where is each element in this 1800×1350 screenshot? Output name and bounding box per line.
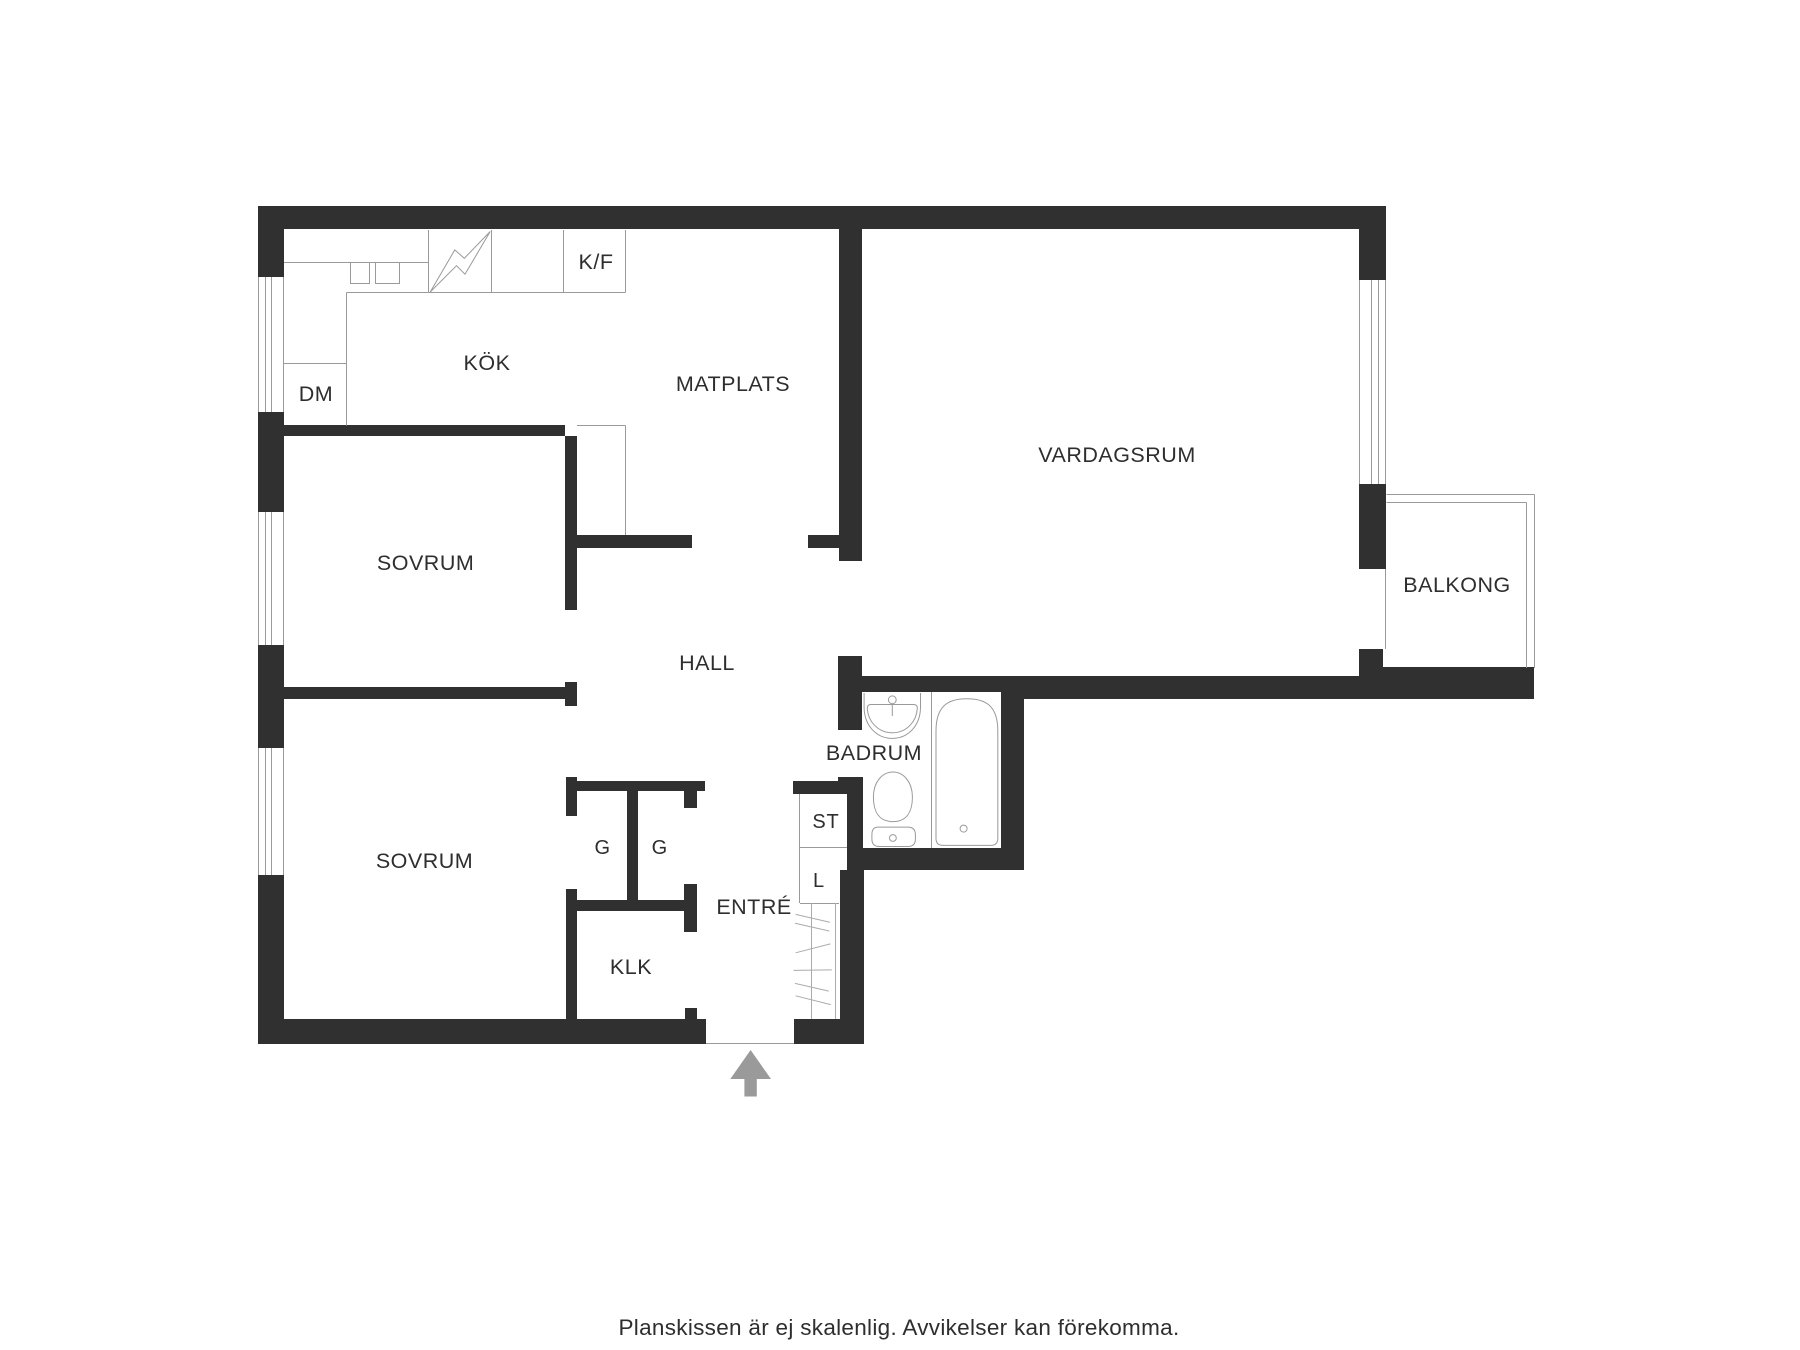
svg-text:HALL: HALL: [679, 651, 735, 675]
svg-text:MATPLATS: MATPLATS: [676, 372, 790, 396]
svg-text:VARDAGSRUM: VARDAGSRUM: [1038, 443, 1196, 467]
svg-text:ENTRÉ: ENTRÉ: [716, 894, 791, 919]
svg-text:BALKONG: BALKONG: [1403, 573, 1510, 597]
svg-text:K/F: K/F: [579, 250, 614, 274]
svg-text:G: G: [652, 837, 668, 859]
svg-text:KÖK: KÖK: [464, 351, 511, 375]
svg-text:SOVRUM: SOVRUM: [376, 849, 473, 873]
svg-text:Planskissen är ej skalenlig. A: Planskissen är ej skalenlig. Avvikelser …: [618, 1315, 1179, 1340]
svg-text:ST: ST: [812, 811, 839, 833]
svg-text:KLK: KLK: [610, 955, 652, 979]
svg-text:DM: DM: [299, 382, 333, 406]
svg-text:SOVRUM: SOVRUM: [377, 551, 474, 575]
svg-text:G: G: [595, 837, 611, 859]
svg-text:BADRUM: BADRUM: [826, 741, 922, 765]
svg-text:L: L: [813, 870, 825, 892]
